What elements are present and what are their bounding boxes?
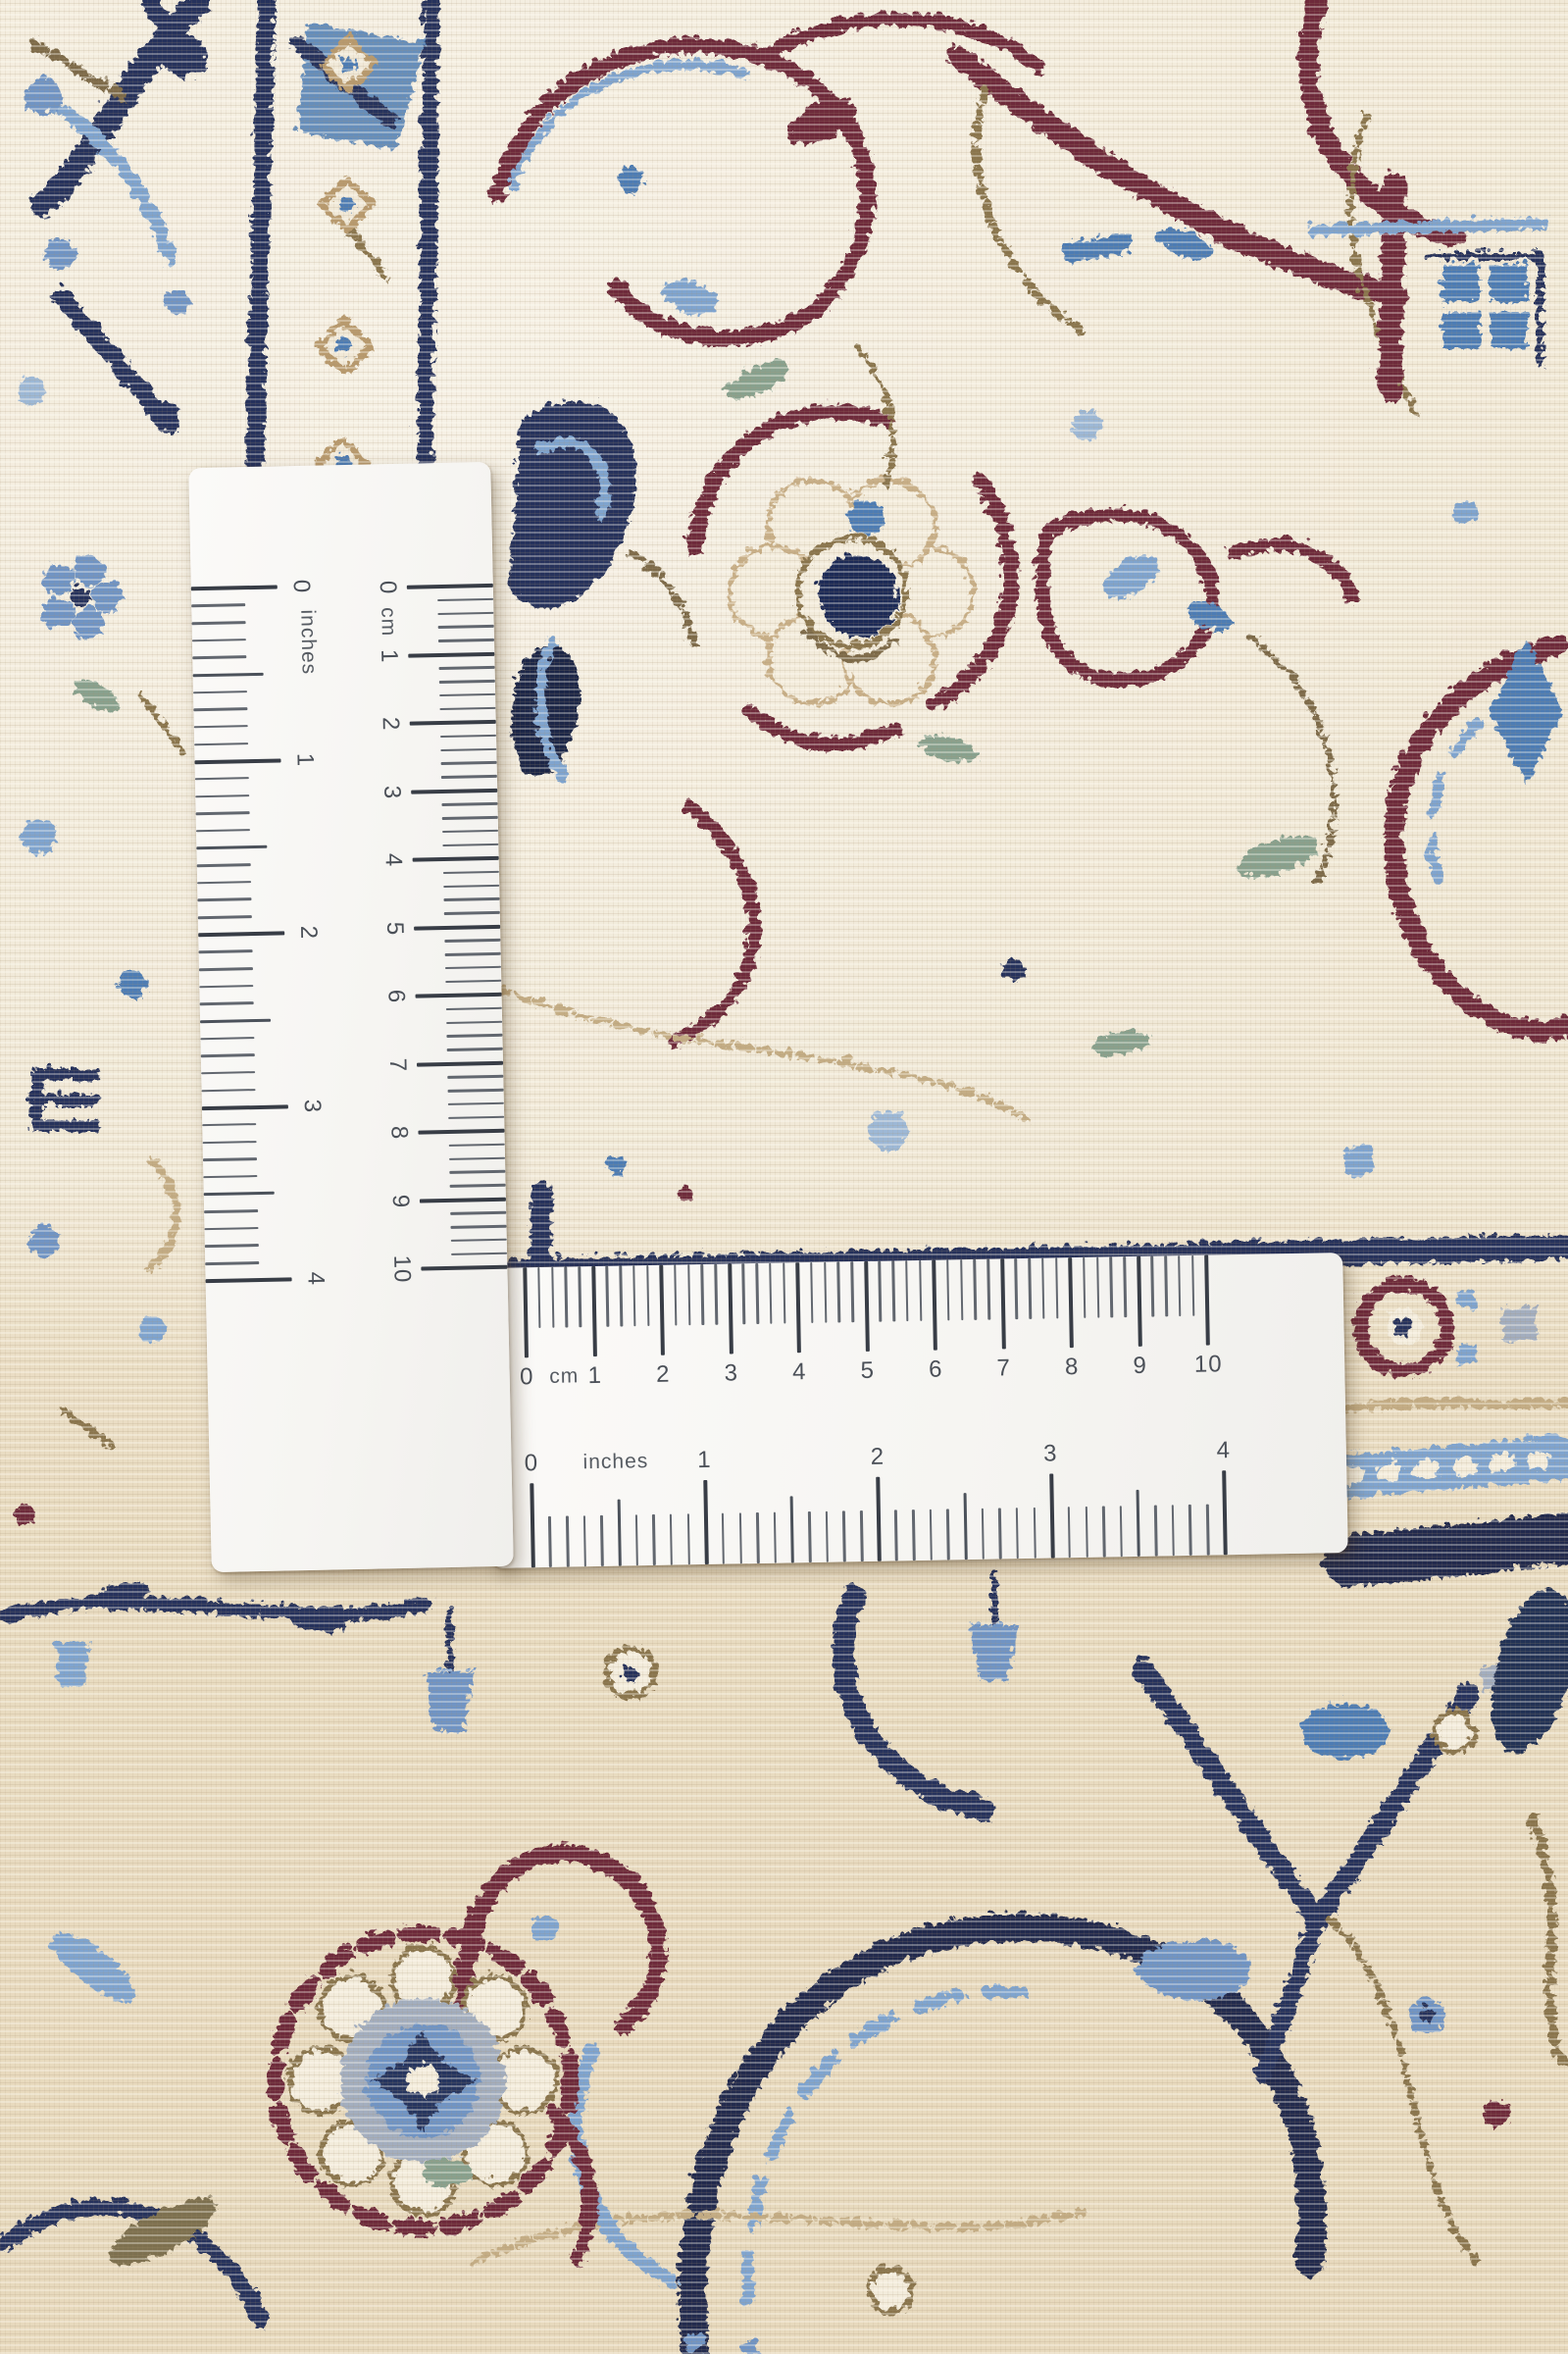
ruler-tick <box>198 931 284 937</box>
ruler-tick <box>191 585 278 590</box>
ruler-tick <box>635 1514 638 1565</box>
ruler-tick <box>998 1508 1001 1559</box>
ruler-tick <box>195 794 249 798</box>
ruler-tick <box>194 725 248 729</box>
ruler-tick <box>860 1510 863 1561</box>
field-arabesques-top <box>495 0 1474 523</box>
ruler-tick <box>583 1515 586 1566</box>
ruler-tick <box>202 1089 256 1093</box>
ruler-tick <box>1068 1507 1071 1558</box>
ruler-tick <box>203 1141 257 1145</box>
ruler-tick <box>566 1516 569 1567</box>
ruler-tick <box>826 1511 829 1562</box>
ruler-tick <box>192 639 246 642</box>
ruler-tick <box>842 1510 845 1561</box>
ruler-tick <box>203 1157 257 1161</box>
ruler-number: 0 <box>289 580 313 594</box>
ruler-tick <box>1154 1506 1157 1557</box>
ruler-tick <box>191 604 245 608</box>
ruler-number: 2 <box>870 1446 885 1469</box>
ruler-tick <box>1102 1507 1105 1558</box>
ruler-tick <box>894 1510 897 1561</box>
ruler-tick <box>193 691 247 694</box>
ruler-tick <box>202 1123 256 1127</box>
ruler-tick <box>192 655 246 659</box>
ruler-tick <box>194 742 248 746</box>
ruler-tick <box>738 1512 741 1563</box>
ruler-tick <box>756 1512 759 1563</box>
ruler-tick <box>1137 1490 1140 1557</box>
ruler-tick <box>193 707 247 711</box>
ruler-tick <box>200 1018 271 1023</box>
ruler-tick <box>686 1513 689 1564</box>
ruler-tick <box>199 949 253 953</box>
ruler-number: 1 <box>292 752 316 767</box>
bottom-border-motifs <box>0 1569 1568 2354</box>
ruler-tick <box>963 1493 967 1560</box>
ruler-tick <box>204 1192 275 1197</box>
horizontal-ruler-inch-scale: inches 01234 <box>485 1253 1347 1568</box>
ruler-tick <box>204 1209 258 1213</box>
vertical-ruler: cm 012345678910 inches 01234 <box>188 462 514 1572</box>
ruler-tick <box>722 1513 725 1564</box>
ruler-tick <box>1206 1505 1209 1556</box>
ruler-tick <box>196 811 250 815</box>
ruler-tick <box>808 1511 811 1562</box>
ruler-number: 2 <box>296 925 320 940</box>
ruler-tick <box>202 1104 288 1110</box>
ruler-number: 4 <box>1216 1439 1231 1462</box>
ruler-tick <box>197 898 251 902</box>
ruler-tick <box>201 1053 255 1057</box>
horizontal-ruler: cm 012345678910 inches 01234 <box>485 1253 1347 1568</box>
ruler-tick <box>530 1483 535 1567</box>
curled-leaf-motif <box>499 397 632 777</box>
ruler-tick <box>197 863 251 867</box>
ruler-number: 4 <box>303 1271 327 1286</box>
vertical-ruler-inch-scale: inches 01234 <box>188 462 514 1572</box>
ruler-number: 0 <box>525 1452 539 1475</box>
ruler-tick <box>600 1515 603 1566</box>
ruler-tick <box>652 1514 655 1565</box>
ruler-tick <box>774 1512 777 1563</box>
ruler-tick <box>193 673 264 678</box>
ruler-tick <box>196 845 267 850</box>
ruler-tick <box>199 985 253 989</box>
ruler-tick <box>1222 1470 1228 1555</box>
ruler-tick <box>670 1514 673 1565</box>
ruler-tick <box>200 1037 254 1041</box>
ruler-tick <box>1189 1505 1191 1556</box>
ruler-tick <box>1033 1508 1036 1559</box>
horizontal-inches-unit-label: inches <box>582 1450 648 1474</box>
ruler-tick <box>790 1496 794 1562</box>
ruler-tick <box>981 1509 984 1560</box>
ruler-tick <box>192 621 246 625</box>
ruler-tick <box>617 1500 621 1566</box>
ruler-tick <box>196 829 250 833</box>
ruler-number: 1 <box>697 1449 712 1472</box>
ruler-tick <box>194 758 280 764</box>
border-stripes-right <box>1345 1281 1568 1558</box>
left-border-motifs <box>12 551 178 1522</box>
ruler-tick <box>930 1510 933 1561</box>
ruler-tick <box>203 1175 257 1179</box>
ruler-tick <box>1172 1505 1175 1556</box>
ruler-tick <box>201 1071 255 1075</box>
ruler-tick <box>205 1261 259 1265</box>
ruler-tick <box>197 881 251 885</box>
ruler-number: 3 <box>300 1099 324 1113</box>
ruler-tick <box>206 1277 292 1283</box>
field-motifs-lower <box>454 804 1371 1199</box>
ruler-tick <box>198 915 252 919</box>
ruler-tick <box>199 967 253 971</box>
ruler-tick <box>1085 1507 1087 1558</box>
ruler-tick <box>195 777 249 781</box>
vertical-inches-unit-label: inches <box>295 609 320 675</box>
ruler-tick <box>1016 1508 1019 1559</box>
ruler-tick <box>1049 1473 1055 1558</box>
field-arabesques-right <box>1038 511 1568 1028</box>
ruler-number: 3 <box>1043 1442 1058 1465</box>
central-blossom-motif <box>628 343 1007 764</box>
ruler-tick <box>703 1480 709 1564</box>
ruler-tick <box>548 1516 551 1567</box>
ruler-tick <box>1120 1506 1123 1557</box>
ruler-tick <box>205 1244 259 1248</box>
ruler-tick <box>200 1001 254 1005</box>
ruler-tick <box>912 1510 915 1561</box>
ruler-tick <box>204 1227 258 1231</box>
ruler-tick <box>876 1477 882 1561</box>
rosette-medallion-motif <box>39 1919 567 2275</box>
photo-stage: cm 012345678910 inches 01234 cm 01234567… <box>0 0 1568 2354</box>
ruler-tick <box>946 1509 949 1560</box>
